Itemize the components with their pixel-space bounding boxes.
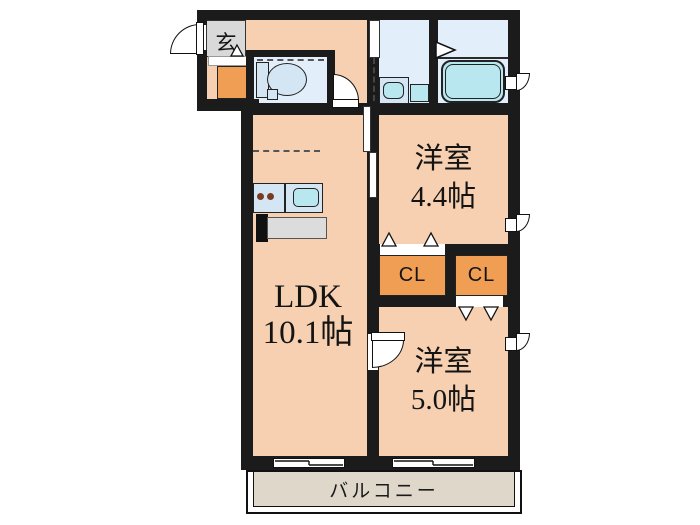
entry-door-leaf	[196, 22, 204, 55]
bedroom-a-window-fan	[516, 214, 530, 232]
bedroom-b-window-fan	[516, 333, 530, 351]
ldk-label: LDK 10.1帖	[250, 279, 366, 352]
bedroom-a-name: 洋室	[379, 141, 508, 179]
bedroom-a-sliding-panel-2	[369, 152, 377, 198]
ldk-area: 10.1帖	[250, 315, 366, 351]
bedroom-b-area: 5.0帖	[379, 382, 508, 420]
closet-b-opening	[456, 296, 503, 307]
wall-upper-block-bottom	[253, 103, 520, 115]
balcony: バルコニー	[246, 470, 522, 514]
balcony-label: バルコニー	[253, 472, 515, 507]
range-hood-dashed-line	[253, 150, 320, 152]
bathtub-icon	[441, 60, 505, 103]
stove-burner-icon	[267, 193, 274, 200]
closet-a-opening	[380, 244, 445, 255]
bedroom-a-window	[505, 218, 517, 232]
closet-b-label: CL	[455, 264, 508, 287]
bedroom-b-door-leaf	[371, 332, 405, 341]
bedroom-a-area: 4.4帖	[379, 179, 508, 217]
bedroom-b-name: 洋室	[379, 344, 508, 382]
toilet-flush-icon	[267, 89, 278, 100]
entrance-step	[208, 56, 248, 66]
wall-toilet-top	[246, 50, 334, 57]
bedroom-a-label: 洋室 4.4帖	[379, 141, 508, 216]
kitchen-sink-icon	[293, 188, 319, 207]
washroom-sliding-door	[369, 20, 380, 58]
floor-plan: バルコニー 玄 LDK 10.1帖 洋室 4.4帖 洋室 5.0帖 CL CL	[0, 0, 700, 525]
wall-toilet-left	[246, 50, 254, 105]
closet-a-label: CL	[379, 264, 446, 287]
hall-door-leaf	[332, 99, 359, 108]
bedroom-b-label: 洋室 5.0帖	[379, 344, 508, 419]
wall-top	[197, 10, 520, 20]
washing-machine-icon	[383, 82, 404, 99]
entrance-label: 玄	[206, 27, 246, 57]
bathroom-window	[505, 76, 517, 90]
ldk-name: LDK	[250, 279, 366, 315]
kitchen-divider	[284, 184, 286, 212]
washroom-door-pocket-line	[373, 58, 375, 101]
washroom-cabinet-icon	[410, 84, 429, 102]
ldk-balcony-window	[273, 458, 345, 468]
kitchen-lower-counter	[267, 217, 327, 239]
shoe-cabinet	[217, 66, 249, 99]
stove-burner-icon	[257, 193, 264, 200]
bathtub-inner-line	[445, 64, 501, 99]
bathroom-floor-line	[438, 57, 508, 59]
bedroom-b-balcony-window	[392, 458, 475, 468]
wall-washroom-bathroom	[429, 10, 438, 105]
toilet-shelf-dashed-line	[257, 59, 324, 61]
wall-closet-divider	[446, 244, 455, 307]
bedroom-a-sliding-panel-1	[363, 106, 371, 152]
bathroom-window-fan	[516, 73, 530, 91]
